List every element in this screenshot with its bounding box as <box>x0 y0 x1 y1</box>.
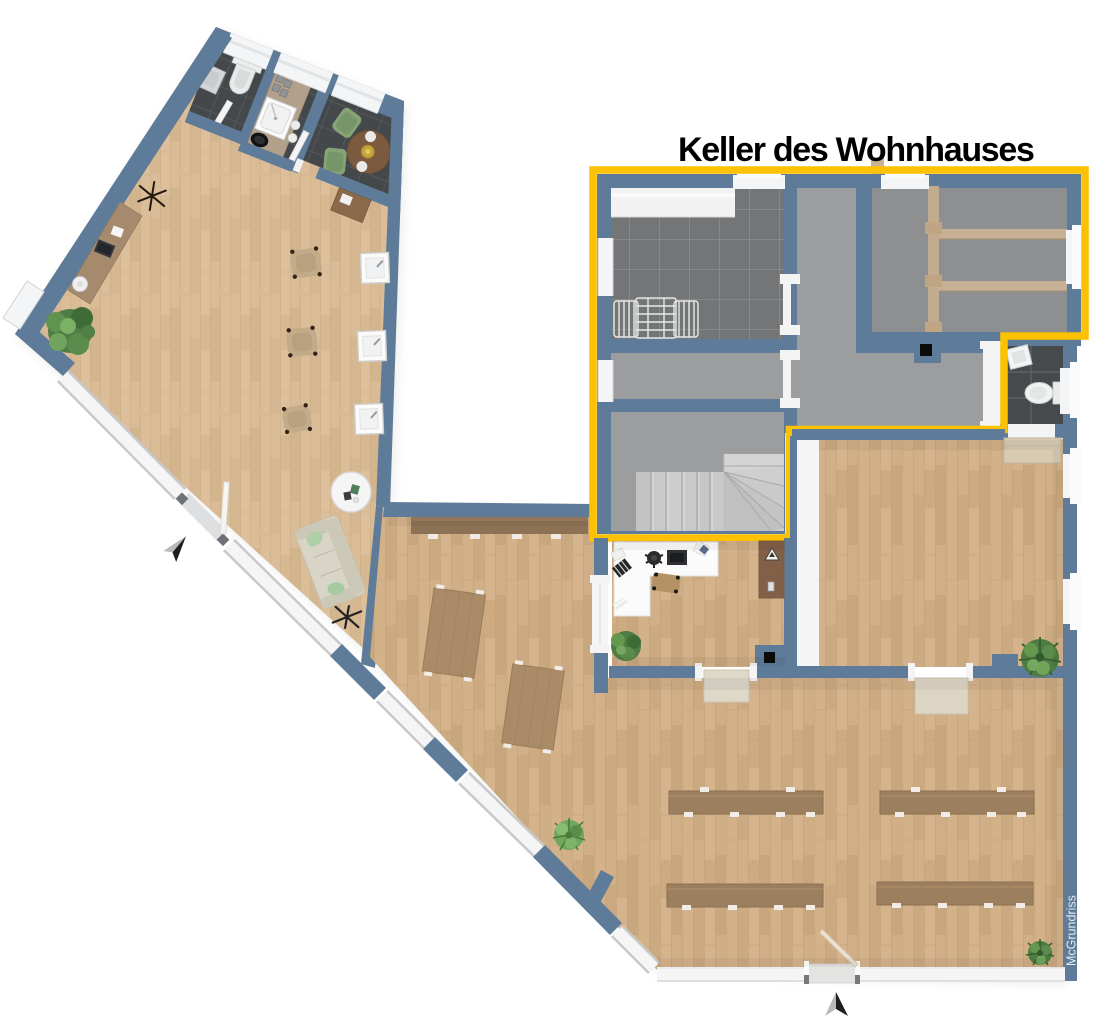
svg-text:Keller des Wohnhauses: Keller des Wohnhauses <box>678 131 1034 169</box>
svg-text:McGrundriss: McGrundriss <box>1065 895 1079 966</box>
